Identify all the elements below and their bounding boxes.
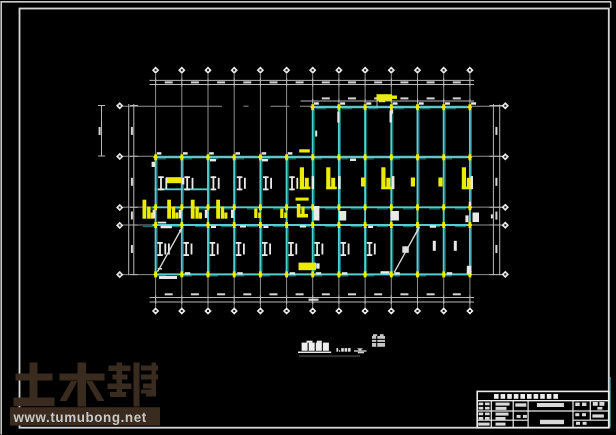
svg-text:www.tumubong.net: www.tumubong.net: [13, 410, 147, 425]
